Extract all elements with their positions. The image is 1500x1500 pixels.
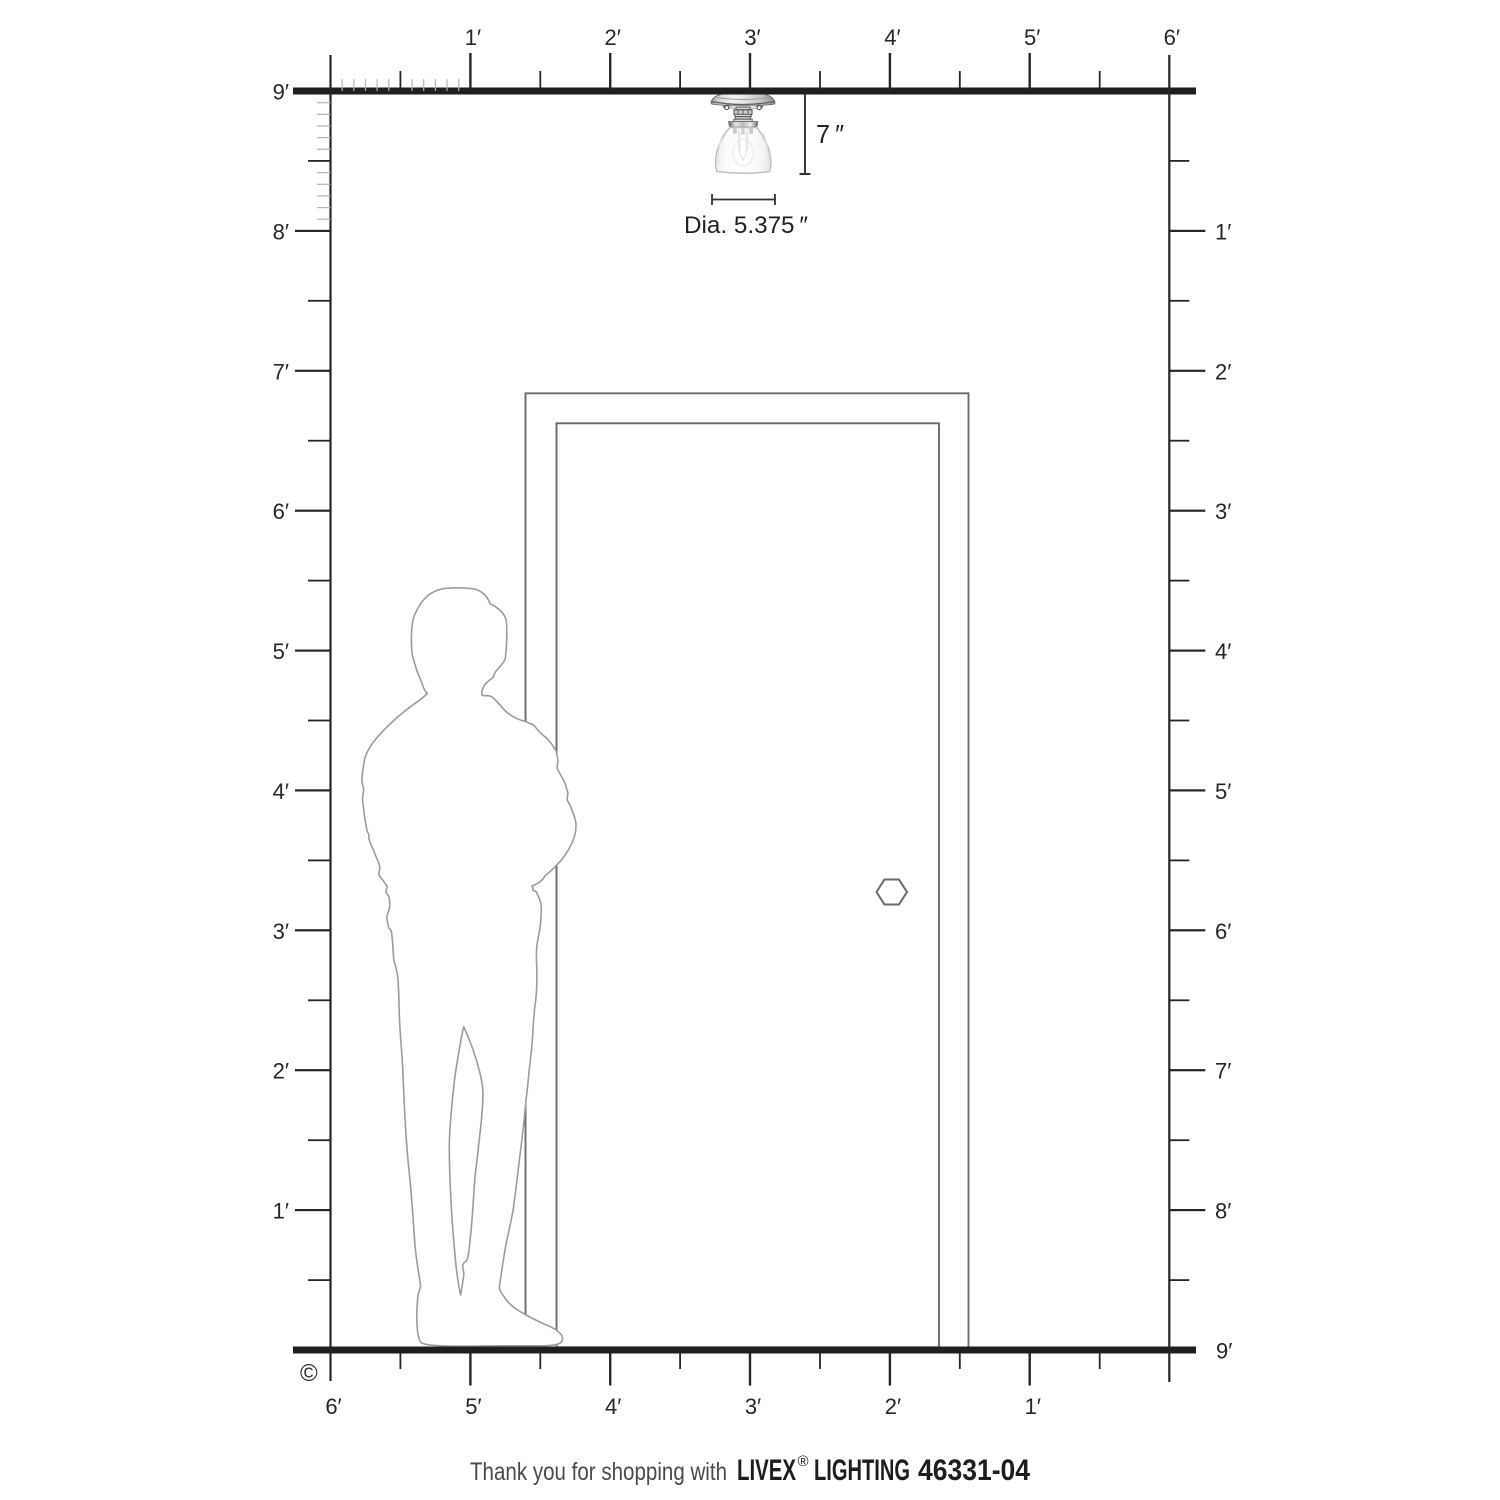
- svg-text:3′: 3′: [745, 1394, 761, 1419]
- svg-text:5′: 5′: [465, 1394, 481, 1419]
- svg-text:46331-04: 46331-04: [918, 1454, 1030, 1487]
- svg-text:6′: 6′: [325, 1394, 341, 1419]
- svg-text:4′: 4′: [273, 779, 289, 804]
- svg-text:6′: 6′: [1164, 25, 1180, 50]
- svg-text:5′: 5′: [1024, 25, 1040, 50]
- svg-text:®: ®: [798, 1453, 809, 1470]
- svg-text:LIGHTING: LIGHTING: [814, 1454, 910, 1487]
- svg-text:4′: 4′: [1215, 639, 1231, 664]
- svg-text:4′: 4′: [605, 1394, 621, 1419]
- svg-text:7 ″: 7 ″: [816, 119, 844, 149]
- svg-text:©: ©: [300, 1360, 318, 1387]
- svg-text:2′: 2′: [273, 1059, 289, 1084]
- svg-text:7′: 7′: [273, 359, 289, 384]
- svg-text:3′: 3′: [744, 25, 760, 50]
- svg-text:4′: 4′: [884, 25, 900, 50]
- svg-text:6′: 6′: [1215, 919, 1231, 944]
- svg-text:Thank you for shopping with: Thank you for shopping with: [470, 1458, 727, 1486]
- svg-text:2′: 2′: [605, 25, 621, 50]
- svg-text:LIVEX: LIVEX: [737, 1454, 796, 1487]
- svg-text:2′: 2′: [1215, 359, 1231, 384]
- svg-text:1′: 1′: [1025, 1394, 1041, 1419]
- svg-text:1′: 1′: [273, 1199, 289, 1224]
- svg-text:5′: 5′: [1215, 779, 1231, 804]
- svg-text:9′: 9′: [273, 80, 289, 105]
- svg-text:9′: 9′: [1216, 1339, 1232, 1364]
- svg-text:1′: 1′: [1215, 219, 1231, 244]
- svg-text:3′: 3′: [1215, 499, 1231, 524]
- svg-text:2′: 2′: [885, 1394, 901, 1419]
- svg-text:8′: 8′: [1215, 1199, 1231, 1224]
- svg-text:Dia. 5.375 ″: Dia. 5.375 ″: [684, 212, 808, 239]
- svg-text:5′: 5′: [273, 639, 289, 664]
- svg-text:1′: 1′: [465, 25, 481, 50]
- svg-text:3′: 3′: [273, 919, 289, 944]
- svg-text:8′: 8′: [273, 219, 289, 244]
- svg-text:7′: 7′: [1215, 1059, 1231, 1084]
- svg-text:6′: 6′: [273, 499, 289, 524]
